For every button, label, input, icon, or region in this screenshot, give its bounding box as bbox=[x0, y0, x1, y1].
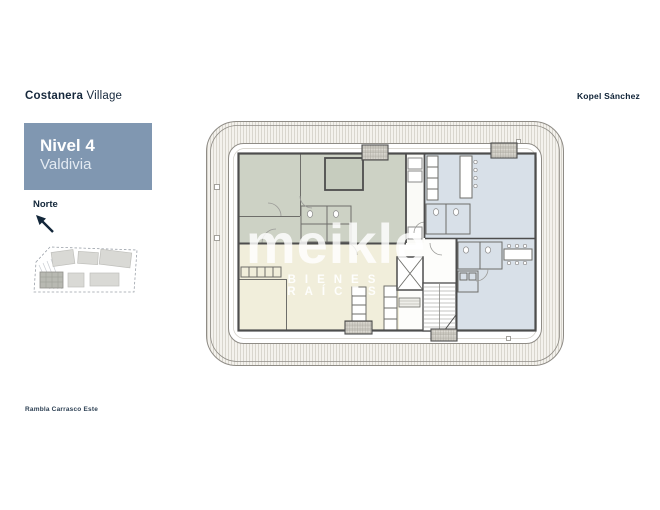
deck-post bbox=[507, 337, 511, 341]
unit-top-left bbox=[239, 154, 406, 243]
elevator bbox=[397, 257, 423, 307]
floor-plan bbox=[0, 0, 660, 510]
deck-post bbox=[215, 185, 220, 190]
stairs bbox=[423, 283, 456, 331]
unit-bottom-left bbox=[239, 243, 399, 330]
deck-post bbox=[215, 236, 220, 241]
street-label: Rambla Carrasco Este bbox=[25, 406, 98, 413]
unit-top-right bbox=[425, 154, 535, 238]
